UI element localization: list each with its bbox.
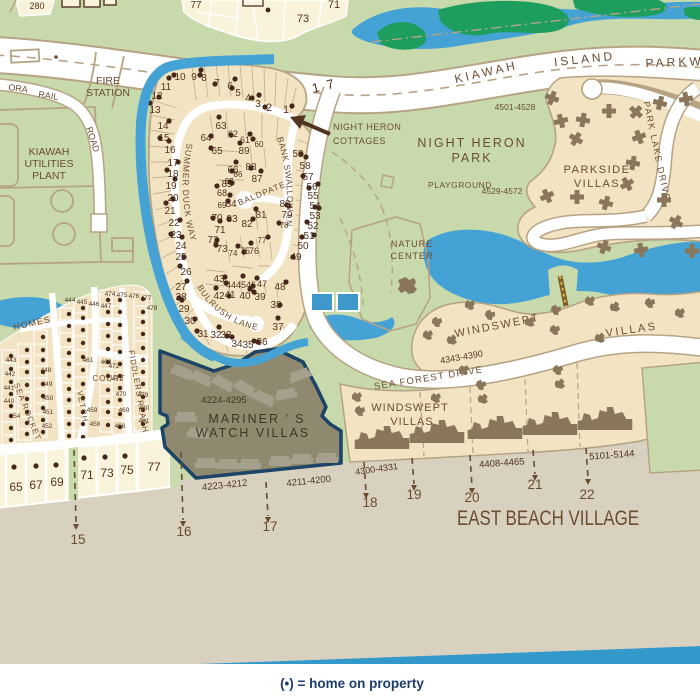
svg-text:STATION: STATION <box>86 87 130 99</box>
svg-text:PARK: PARK <box>451 151 492 165</box>
svg-text:4529-4572: 4529-4572 <box>482 186 523 196</box>
svg-text:69: 69 <box>50 475 64 489</box>
svg-text:71: 71 <box>80 468 94 482</box>
svg-text:5: 5 <box>235 88 241 99</box>
svg-text:461: 461 <box>83 357 94 364</box>
svg-text:4501-4528: 4501-4528 <box>495 102 536 112</box>
svg-text:440: 440 <box>4 398 15 405</box>
svg-text:466: 466 <box>115 423 126 430</box>
svg-text:443: 443 <box>6 357 17 364</box>
svg-text:19: 19 <box>406 487 421 502</box>
svg-text:21: 21 <box>527 477 542 492</box>
svg-text:77: 77 <box>147 460 161 474</box>
svg-text:445: 445 <box>77 299 88 306</box>
svg-text:60: 60 <box>255 140 264 149</box>
svg-text:NIGHT HERON: NIGHT HERON <box>417 136 526 150</box>
svg-text:VILLAS: VILLAS <box>390 416 433 428</box>
svg-text:474: 474 <box>105 291 116 298</box>
svg-text:469: 469 <box>119 407 130 414</box>
svg-text:39: 39 <box>254 292 266 303</box>
svg-text:29: 29 <box>178 304 190 315</box>
svg-text:74: 74 <box>229 249 238 258</box>
svg-text:73: 73 <box>297 13 309 25</box>
svg-text:PLANT: PLANT <box>32 170 66 182</box>
svg-text:34: 34 <box>231 339 243 350</box>
svg-text:PARKWA: PARKWA <box>645 54 700 70</box>
svg-text:WINDSWEPT: WINDSWEPT <box>371 402 448 414</box>
svg-text:(•) = home on property: (•) = home on property <box>280 676 424 691</box>
svg-text:476: 476 <box>129 293 140 300</box>
svg-text:280: 280 <box>29 1 44 11</box>
svg-text:19: 19 <box>165 181 177 192</box>
svg-text:NIGHT HERON: NIGHT HERON <box>333 122 401 132</box>
svg-text:65: 65 <box>9 480 23 494</box>
svg-text:53: 53 <box>309 211 321 222</box>
svg-text:16: 16 <box>176 524 191 539</box>
svg-text:58: 58 <box>299 161 311 172</box>
svg-text:VILLAS: VILLAS <box>574 178 620 190</box>
svg-text:454: 454 <box>10 413 21 420</box>
svg-text:40: 40 <box>239 291 251 302</box>
svg-text:1: 1 <box>283 104 289 116</box>
svg-text:447: 447 <box>101 303 112 310</box>
svg-text:470: 470 <box>116 391 127 398</box>
svg-text:COURT: COURT <box>92 374 125 383</box>
svg-text:458: 458 <box>90 421 101 428</box>
svg-text:17: 17 <box>262 519 277 534</box>
svg-text:442: 442 <box>5 371 16 378</box>
svg-text:37: 37 <box>272 322 284 333</box>
svg-text:FIRE: FIRE <box>96 75 120 87</box>
svg-text:63: 63 <box>215 121 227 132</box>
svg-text:478: 478 <box>147 305 158 312</box>
svg-text:KIAWAH: KIAWAH <box>29 146 70 158</box>
svg-text:45: 45 <box>236 280 246 290</box>
svg-text:50: 50 <box>297 241 309 252</box>
svg-text:89: 89 <box>238 146 250 157</box>
svg-text:15: 15 <box>70 532 85 547</box>
svg-text:26: 26 <box>180 267 192 278</box>
svg-text:446: 446 <box>89 301 100 308</box>
svg-text:87: 87 <box>251 174 263 185</box>
svg-text:450: 450 <box>43 395 54 402</box>
svg-text:3: 3 <box>255 99 261 110</box>
svg-text:47: 47 <box>257 279 267 289</box>
svg-text:86: 86 <box>234 170 243 179</box>
svg-text:9: 9 <box>191 72 197 83</box>
svg-text:4224-4295: 4224-4295 <box>201 395 246 406</box>
svg-text:COTTAGES: COTTAGES <box>333 136 386 146</box>
svg-text:18: 18 <box>362 495 377 510</box>
svg-text:MARINER ’ S: MARINER ’ S <box>208 412 305 426</box>
svg-text:448: 448 <box>41 367 52 374</box>
svg-text:16: 16 <box>164 145 176 156</box>
svg-text:77: 77 <box>190 0 202 11</box>
svg-text:UTILITIES: UTILITIES <box>24 158 73 170</box>
svg-text:22: 22 <box>579 487 594 502</box>
svg-text:472: 472 <box>109 363 120 370</box>
svg-text:75: 75 <box>120 463 134 477</box>
svg-text:451: 451 <box>43 409 54 416</box>
svg-text:477: 477 <box>141 295 152 302</box>
svg-text:449: 449 <box>42 381 53 388</box>
svg-text:73: 73 <box>100 466 114 480</box>
svg-text:21: 21 <box>164 206 176 217</box>
svg-text:WATCH VILLAS: WATCH VILLAS <box>196 426 310 440</box>
svg-text:20: 20 <box>464 490 479 505</box>
svg-text:13: 13 <box>149 105 161 116</box>
svg-text:NATURE: NATURE <box>391 239 433 249</box>
svg-text:76: 76 <box>249 246 259 256</box>
svg-text:PARKSIDE: PARKSIDE <box>564 164 631 176</box>
svg-text:24: 24 <box>175 241 187 252</box>
svg-text:71: 71 <box>328 0 340 11</box>
svg-text:67: 67 <box>29 478 43 492</box>
svg-text:444: 444 <box>65 297 76 304</box>
svg-text:452: 452 <box>42 423 53 430</box>
svg-text:EAST BEACH VILLAGE: EAST BEACH VILLAGE <box>457 507 639 530</box>
svg-text:81: 81 <box>255 210 267 221</box>
svg-text:475: 475 <box>117 292 128 299</box>
svg-text:CENTER: CENTER <box>390 251 433 261</box>
